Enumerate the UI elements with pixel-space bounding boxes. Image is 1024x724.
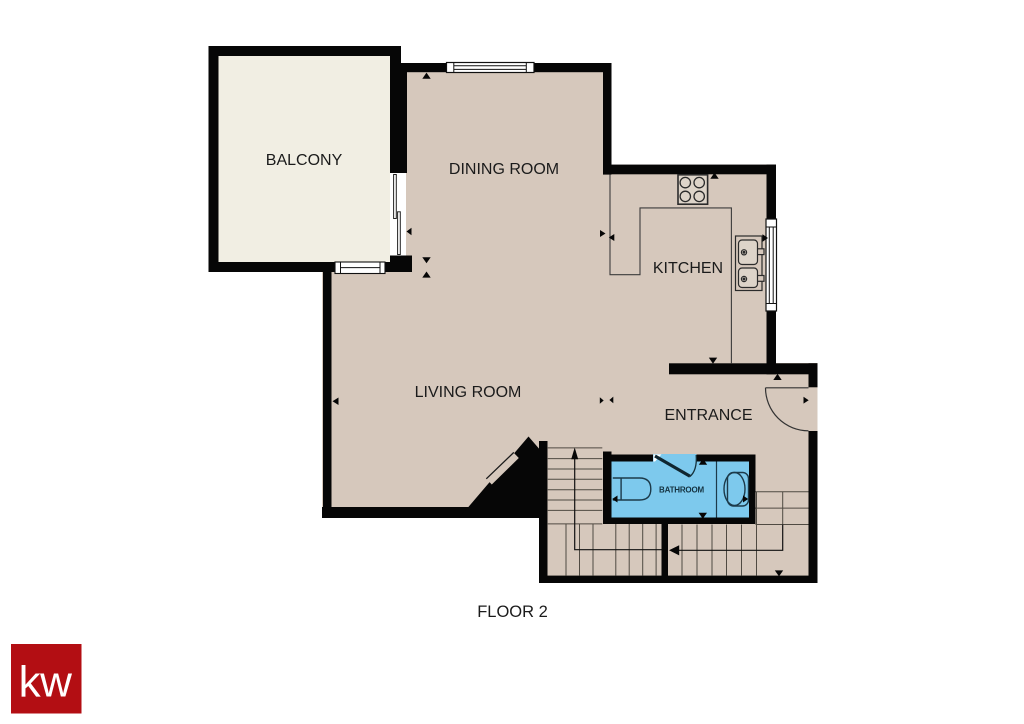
svg-text:kw: kw: [19, 658, 73, 707]
svg-text:ENTRANCE: ENTRANCE: [664, 407, 752, 424]
svg-text:FLOOR 2: FLOOR 2: [477, 603, 548, 621]
svg-text:BALCONY: BALCONY: [266, 152, 343, 169]
svg-text:DINING ROOM: DINING ROOM: [449, 161, 559, 178]
svg-text:LIVING ROOM: LIVING ROOM: [415, 384, 522, 401]
svg-text:KITCHEN: KITCHEN: [653, 260, 723, 277]
svg-text:BATHROOM: BATHROOM: [659, 485, 704, 494]
